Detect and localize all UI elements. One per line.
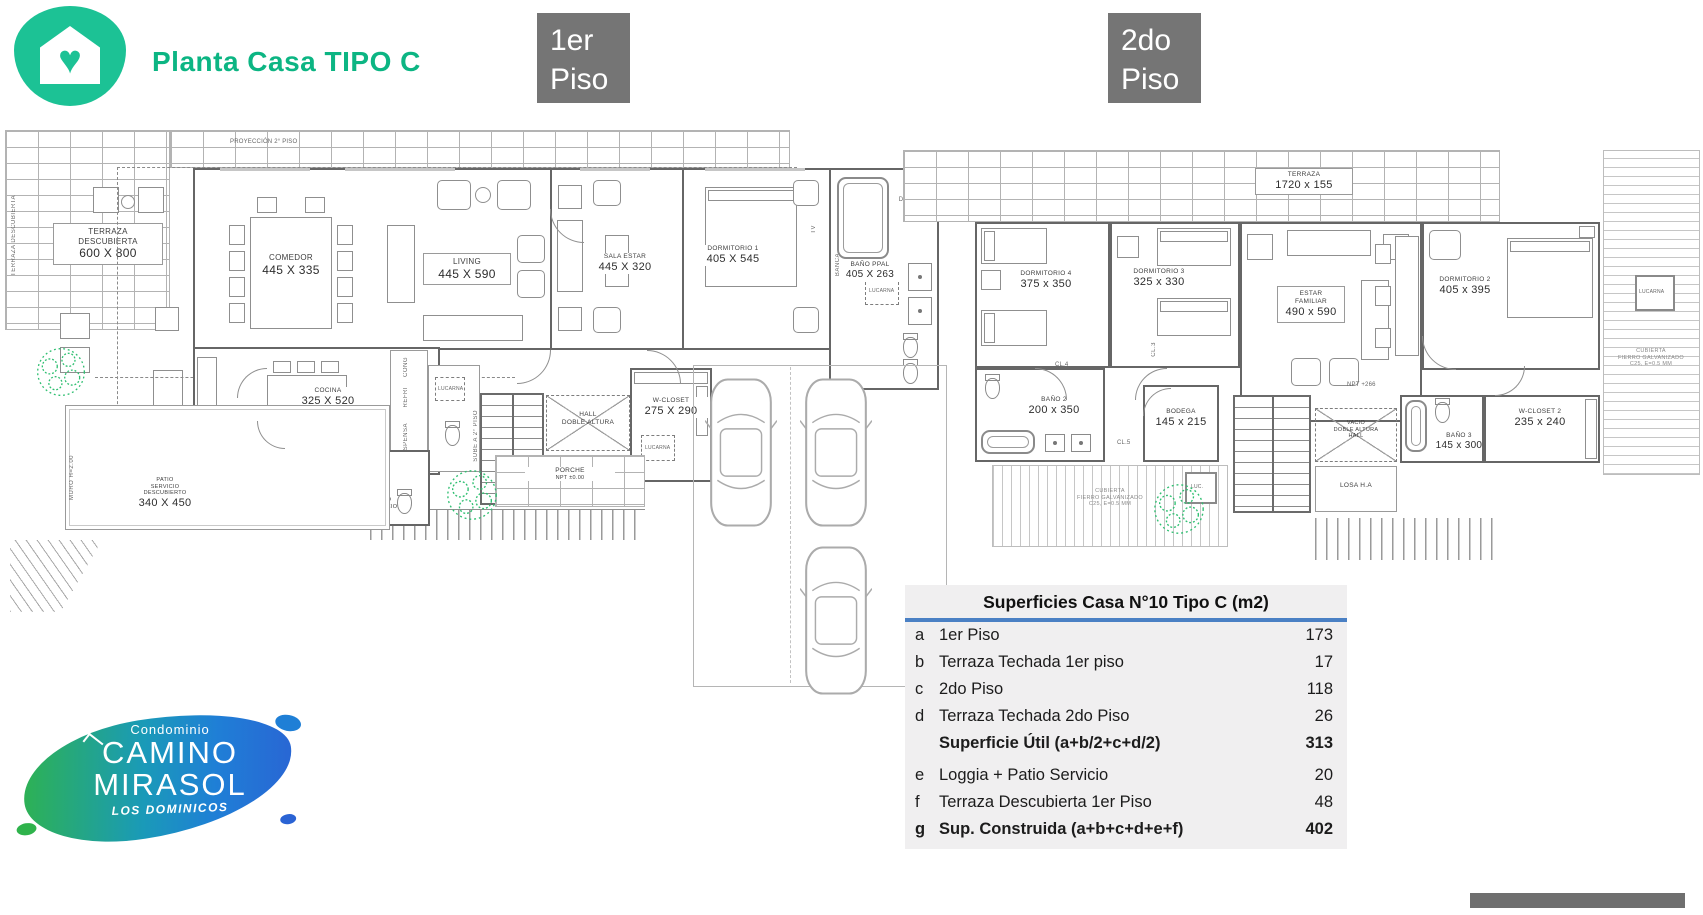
- bed: [1507, 238, 1593, 318]
- armchair: [517, 235, 545, 263]
- chair: [1375, 286, 1391, 306]
- bed: [981, 310, 1047, 346]
- chair: [257, 197, 277, 213]
- wcloset2-label: W-CLOSET 2 235 x 240: [1495, 408, 1585, 429]
- nightstand: [1579, 226, 1595, 238]
- terraza-label: TERRAZA DESCUBIERTA 600 X 800: [53, 223, 163, 265]
- armchair: [793, 180, 819, 206]
- floor-plan-2: TERRAZA 1720 x 155 LUCARNA CUBIERTA FIER…: [895, 140, 1703, 575]
- floor-plan-1: TERRAZA DESCUBIERTA TERRAZA DESCUBIERTA …: [5, 125, 945, 710]
- bano-ppal-label: BAÑO PPAL 405 X 263: [839, 261, 901, 281]
- cl3-label: CL.3: [1151, 342, 1157, 357]
- side-table: [558, 307, 582, 331]
- sube-label: SUBE A 2° PISO: [473, 410, 479, 462]
- bed: [705, 187, 797, 287]
- armchair: [437, 180, 471, 210]
- page-title: Planta Casa TIPO C: [152, 46, 421, 78]
- cl5-label: CL.5: [1117, 440, 1130, 446]
- armchair: [1429, 230, 1461, 260]
- bathtub: [1405, 400, 1427, 452]
- patio-label: PATIO SERVICIO DESCUBIERTO 340 X 450: [120, 477, 210, 510]
- house-icon: ♥: [40, 26, 100, 84]
- losa-label: LOSA H.A: [1319, 482, 1393, 490]
- refri-label: REFRI: [403, 387, 409, 408]
- tree: [1150, 480, 1208, 538]
- dormitorio1-label: DORMITORIO 1 405 X 545: [693, 245, 773, 266]
- bathtub: [837, 177, 889, 259]
- door-arc: [517, 350, 551, 384]
- chair: [337, 303, 353, 323]
- toilet: [985, 378, 1000, 399]
- table-row: f Terraza Descubierta 1er Piso 48: [905, 789, 1347, 816]
- armchair: [497, 180, 531, 210]
- dormitorio3-label: DORMITORIO 3 325 x 330: [1117, 268, 1201, 289]
- terraza-side-label: TERRAZA DESCUBIERTA: [11, 195, 17, 276]
- sink: [1045, 434, 1065, 452]
- side-table: [475, 187, 491, 203]
- bathtub: [981, 430, 1035, 454]
- chair: [337, 251, 353, 271]
- chair: [337, 277, 353, 297]
- lucarna-box: LUCARNA: [1635, 275, 1675, 311]
- nightstand: [1117, 236, 1139, 258]
- lucarna-label: LUCARNA: [1639, 289, 1664, 295]
- estar-label: ESTAR FAMILIAR 490 x 590: [1277, 286, 1345, 323]
- floor2-badge: 2do Piso: [1108, 13, 1201, 103]
- living-label: LIVING 445 X 590: [423, 253, 511, 285]
- lucarna-label: LUCARNA: [869, 288, 894, 294]
- npt-label: NPT +266: [1347, 382, 1376, 388]
- table-row: b Terraza Techada 1er piso 17: [905, 649, 1347, 676]
- toilet: [1435, 402, 1450, 423]
- cubierta-right: [1603, 150, 1700, 475]
- room-wcloset2: [1484, 395, 1600, 463]
- plan-sheet: ♥ Planta Casa TIPO C 1er Piso 2do Piso T…: [0, 0, 1703, 915]
- footer-gray-bar: [1470, 893, 1685, 908]
- terrace-side-table: [155, 307, 179, 331]
- hall-label: HALL DOBLE ALTURA: [551, 411, 625, 427]
- car: [705, 375, 777, 530]
- muro-label: MURO H=2.00: [69, 455, 75, 500]
- table-row: e Loggia + Patio Servicio 20: [905, 762, 1347, 789]
- table-row: a 1er Piso 173: [905, 622, 1347, 649]
- patio-servicio: [65, 405, 390, 530]
- chair: [229, 277, 245, 297]
- proyeccion-label: PROYECCIÓN 2° PISO: [230, 139, 297, 145]
- cong-label: CONG: [403, 357, 409, 377]
- porche-label: PORCHE NPT ±0.00: [525, 467, 615, 481]
- car: [800, 543, 872, 698]
- sofa: [423, 315, 523, 341]
- tree: [443, 465, 501, 525]
- sink: [1071, 434, 1091, 452]
- stool: [321, 361, 339, 373]
- stool: [297, 361, 315, 373]
- car: [800, 375, 872, 530]
- terrace-chair: [138, 187, 164, 213]
- stall-divider: [790, 367, 791, 683]
- chair: [229, 225, 245, 245]
- side-table: [558, 185, 582, 209]
- brand-house-heart-icon: ♥: [14, 6, 126, 106]
- door-arc: [647, 350, 681, 384]
- armchair: [1291, 358, 1321, 386]
- table-row: d Terraza Techada 2do Piso 26: [905, 703, 1347, 730]
- sofa: [387, 225, 415, 303]
- heart-icon: ♥: [40, 40, 100, 80]
- side-table: [1247, 234, 1273, 260]
- desk: [1395, 236, 1419, 356]
- dormitorio2-label: DORMITORIO 2 405 x 395: [1423, 276, 1507, 297]
- bano3-label: BAÑO 3 145 x 300: [1433, 432, 1485, 452]
- dormitorio4-label: DORMITORIO 4 375 x 350: [1003, 270, 1089, 291]
- floor1-line2: Piso: [550, 60, 630, 99]
- chair: [229, 251, 245, 271]
- deck-hatch-2: [1315, 518, 1500, 560]
- chair: [1375, 244, 1391, 264]
- chair: [337, 225, 353, 245]
- stairs-2: [1233, 395, 1311, 513]
- bed: [1157, 298, 1231, 336]
- sofa: [1287, 230, 1371, 256]
- cl4-label: CL.4: [1055, 362, 1068, 368]
- terrace-armchair: [60, 313, 90, 339]
- tv-label: TV: [811, 225, 817, 234]
- table-row-sup-construida: g Sup. Construida (a+b+c+d+e+f) 402: [905, 816, 1347, 843]
- window: [220, 168, 310, 171]
- superficies-table: Superficies Casa N°10 Tipo C (m2) a 1er …: [905, 585, 1347, 849]
- floor1-line1: 1er: [550, 21, 630, 60]
- armchair: [793, 307, 819, 333]
- terrace-table: [121, 195, 135, 209]
- table-row: c 2do Piso 118: [905, 676, 1347, 703]
- floor2-line1: 2do: [1121, 21, 1201, 60]
- table-title: Superficies Casa N°10 Tipo C (m2): [905, 585, 1347, 618]
- proyeccion-brick-band: [170, 130, 790, 168]
- lucarna-dashed-box: LUCARNA: [865, 277, 899, 305]
- floor2-line2: Piso: [1121, 60, 1201, 99]
- lucarna-label: LUCARNA: [438, 386, 463, 392]
- chair: [305, 197, 325, 213]
- lucarna-dashed-box: LUCARNA: [435, 377, 465, 401]
- cubierta-right-label: CUBIERTA FIERRO GALVANIZADO C25, E=0.5 M…: [1601, 348, 1701, 368]
- sala-estar-label: SALA ESTAR 445 X 320: [591, 253, 659, 274]
- vacio-label: VACIO DOBLE ALTURA HALL: [1319, 420, 1393, 440]
- terraza2-band: [903, 150, 1500, 222]
- walkway-hatch: [10, 540, 102, 612]
- bed: [1157, 228, 1231, 266]
- stool: [273, 361, 291, 373]
- door-arc: [1495, 366, 1525, 396]
- closet-shelf: [1585, 399, 1597, 459]
- armchair: [593, 180, 621, 206]
- armchair: [593, 307, 621, 333]
- terrace-chair: [93, 187, 119, 213]
- window: [580, 168, 650, 171]
- window: [345, 168, 455, 171]
- floor1-badge: 1er Piso: [537, 13, 630, 103]
- chair: [229, 303, 245, 323]
- nightstand: [981, 270, 1001, 290]
- projection-dashed-line: [117, 167, 118, 429]
- chair: [1375, 328, 1391, 348]
- lucarna-label: LUCARNA: [645, 445, 670, 451]
- brand-mirasol: MIRASOL: [60, 769, 280, 801]
- bed: [981, 228, 1047, 264]
- terraza2-label: TERRAZA 1720 x 155: [1255, 168, 1353, 195]
- toilet: [445, 425, 460, 446]
- armchair: [517, 270, 545, 298]
- tree: [33, 343, 89, 401]
- comedor-label: COMEDOR 445 X 335: [255, 253, 327, 277]
- lucarna-dashed-box: LUCARNA: [641, 435, 675, 461]
- window: [705, 168, 805, 171]
- table-row-superficie-util: Superficie Útil (a+b/2+c+d/2) 313: [905, 730, 1347, 757]
